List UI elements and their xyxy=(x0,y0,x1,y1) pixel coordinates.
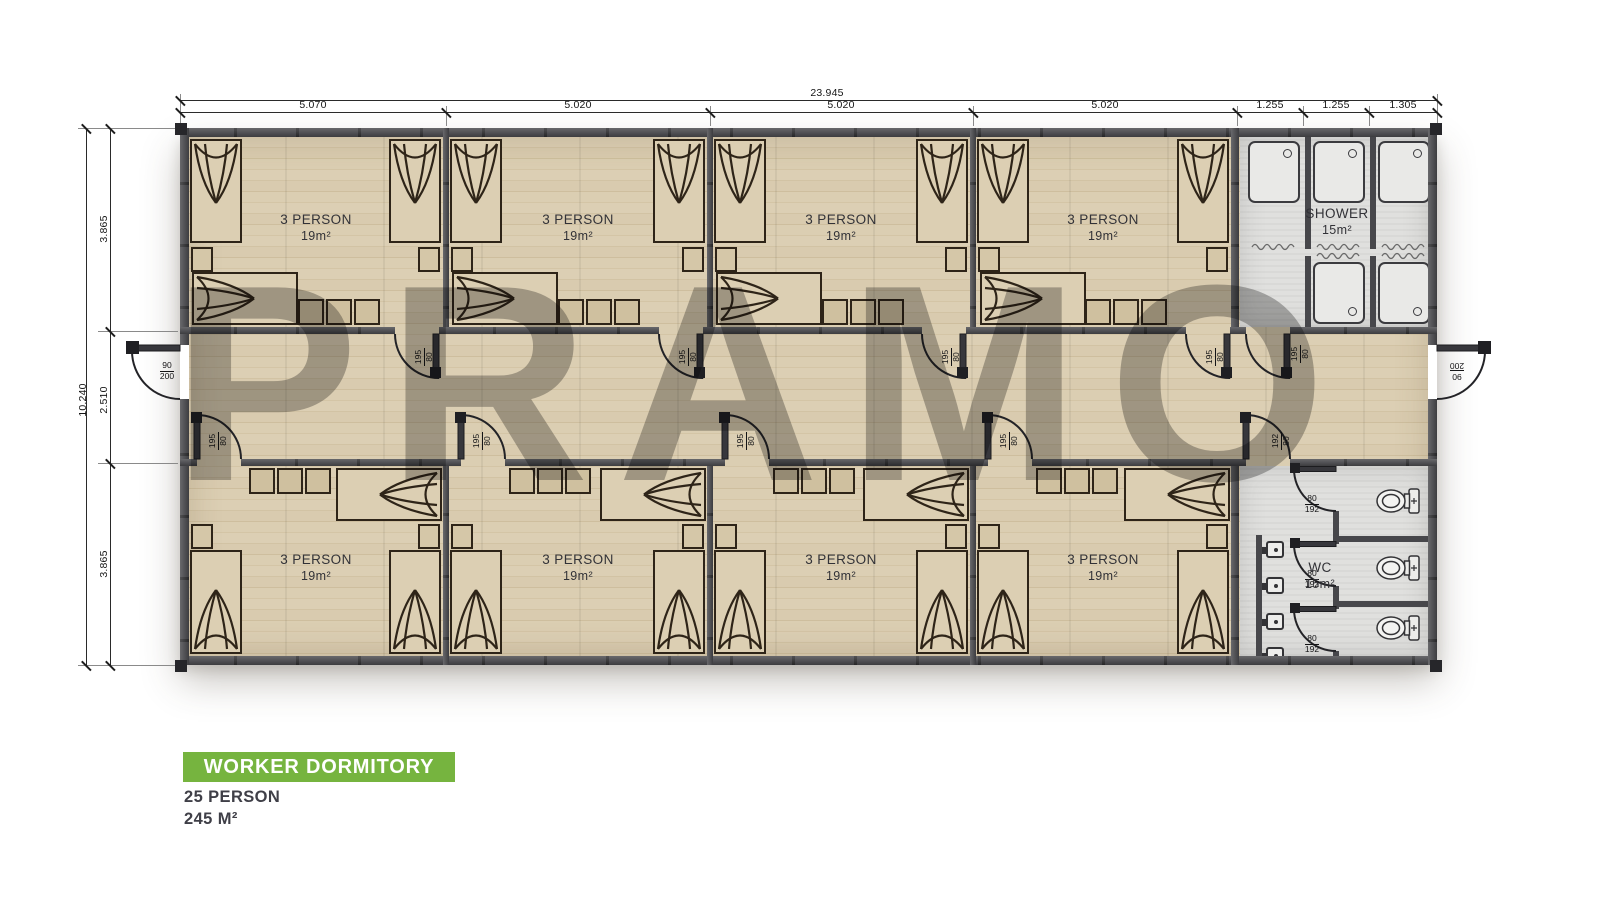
door-size-label: 19280 xyxy=(1271,428,1291,454)
room-label: 3 PERSON19m² xyxy=(781,212,901,244)
door-size-label: 80192 xyxy=(1299,634,1325,654)
door-size-label: 19580 xyxy=(999,428,1019,454)
room-label: 3 PERSON19m² xyxy=(1043,212,1163,244)
shower-label: SHOWER15m² xyxy=(1277,206,1397,238)
door-size-label: 19580 xyxy=(208,428,228,454)
door-size-label: 19580 xyxy=(472,428,492,454)
room-label: 3 PERSON19m² xyxy=(781,552,901,584)
door-size-label: 19580 xyxy=(1205,344,1225,370)
wc-label: WC15m² xyxy=(1265,560,1375,592)
door-size-label: 19580 xyxy=(678,344,698,370)
room-label: 3 PERSON19m² xyxy=(256,552,376,584)
room-label: 3 PERSON19m² xyxy=(518,212,638,244)
door-size-label: 90200 xyxy=(1444,361,1470,381)
room-label: 3 PERSON19m² xyxy=(518,552,638,584)
door-size-label: 90200 xyxy=(154,361,180,381)
room-label: 3 PERSON19m² xyxy=(1043,552,1163,584)
room-label: 3 PERSON19m² xyxy=(256,212,376,244)
door-size-label: 19580 xyxy=(941,344,961,370)
door-shower xyxy=(1246,334,1292,378)
doors-overlay xyxy=(0,0,1600,900)
door-size-label: 80192 xyxy=(1299,494,1325,514)
floor-plan-page: 19580 19580 19580 19580 19580 19580 1958… xyxy=(0,0,1600,900)
door-size-label: 19580 xyxy=(736,428,756,454)
door-size-label: 19580 xyxy=(1290,341,1310,367)
door-size-label: 19580 xyxy=(414,344,434,370)
